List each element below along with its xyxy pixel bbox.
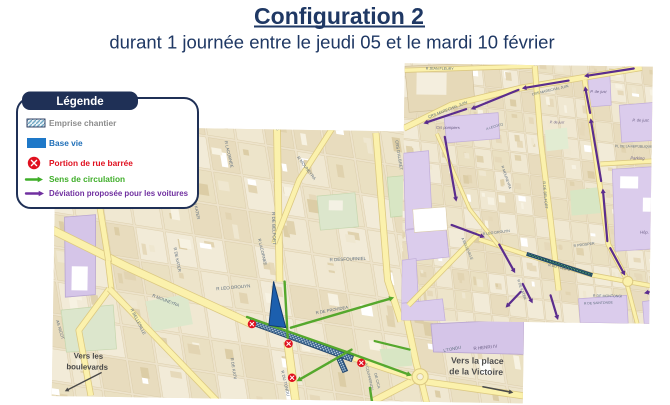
svg-text:P. de just: P. de just: [550, 120, 566, 124]
svg-text:Base vie: Base vie: [49, 138, 83, 148]
svg-text:Sens de circulation: Sens de circulation: [49, 174, 125, 184]
svg-text:Vers la place: Vers la place: [451, 355, 504, 366]
svg-text:R DE MONTONGI: R DE MONTONGI: [593, 294, 622, 298]
svg-text:Déviation proposée pour les vo: Déviation proposée pour les voitures: [49, 189, 189, 198]
svg-text:PL DE LA REPUBLIQUE: PL DE LA REPUBLIQUE: [615, 144, 653, 149]
svg-text:P. de just.: P. de just.: [632, 117, 649, 122]
svg-text:Configuration 2: Configuration 2: [254, 3, 424, 29]
svg-text:Emprise chantier: Emprise chantier: [49, 118, 117, 128]
svg-text:boulevards: boulevards: [66, 362, 108, 372]
svg-text:Crs pompiers: Crs pompiers: [436, 125, 460, 130]
svg-text:Portion de rue barrée: Portion de rue barrée: [49, 158, 133, 168]
svg-text:de la Victoire: de la Victoire: [449, 366, 503, 377]
svg-text:R JEAN FLEURY: R JEAN FLEURY: [426, 67, 455, 71]
svg-text:Vers les: Vers les: [74, 351, 104, 360]
svg-text:Légende: Légende: [56, 96, 103, 108]
svg-text:durant 1 journée entre le jeud: durant 1 journée entre le jeudi 05 et le…: [109, 32, 554, 53]
svg-text:Parking: Parking: [630, 155, 645, 160]
svg-text:P. de just: P. de just: [590, 89, 607, 94]
svg-text:Hôp.: Hôp.: [640, 230, 649, 235]
